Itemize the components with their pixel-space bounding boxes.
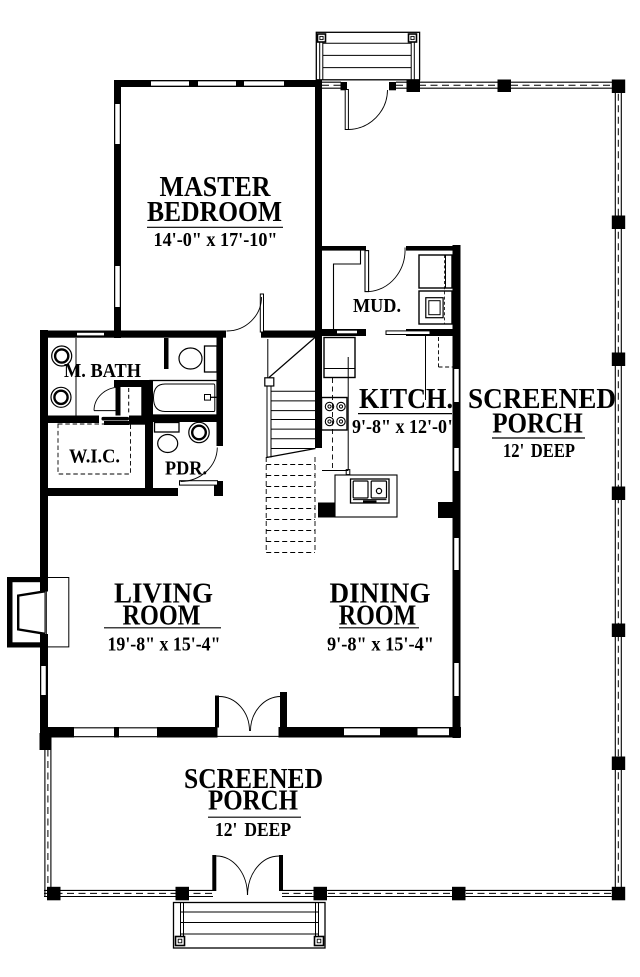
- svg-text:MUD.: MUD.: [353, 295, 401, 317]
- svg-text:BEDROOM: BEDROOM: [147, 196, 282, 228]
- svg-text:9'-8" x 15'-4": 9'-8" x 15'-4": [327, 634, 434, 656]
- svg-text:W.I.C.: W.I.C.: [69, 446, 120, 468]
- svg-text:PORCH: PORCH: [208, 786, 298, 817]
- svg-text:14'-0" x 17'-10": 14'-0" x 17'-10": [154, 229, 278, 251]
- svg-text:19'-8" x 15'-4": 19'-8" x 15'-4": [108, 634, 221, 656]
- svg-text:12' DEEP: 12' DEEP: [215, 819, 291, 841]
- svg-text:PDR.: PDR.: [165, 458, 207, 480]
- svg-text:ROOM: ROOM: [339, 599, 417, 631]
- svg-text:12' DEEP: 12' DEEP: [503, 440, 575, 462]
- svg-text:9'-8" x 12'-0": 9'-8" x 12'-0": [352, 416, 457, 438]
- svg-text:PORCH: PORCH: [492, 408, 583, 440]
- svg-text:KITCH.: KITCH.: [359, 383, 453, 415]
- svg-text:ROOM: ROOM: [123, 599, 201, 631]
- svg-text:M. BATH: M. BATH: [64, 360, 141, 382]
